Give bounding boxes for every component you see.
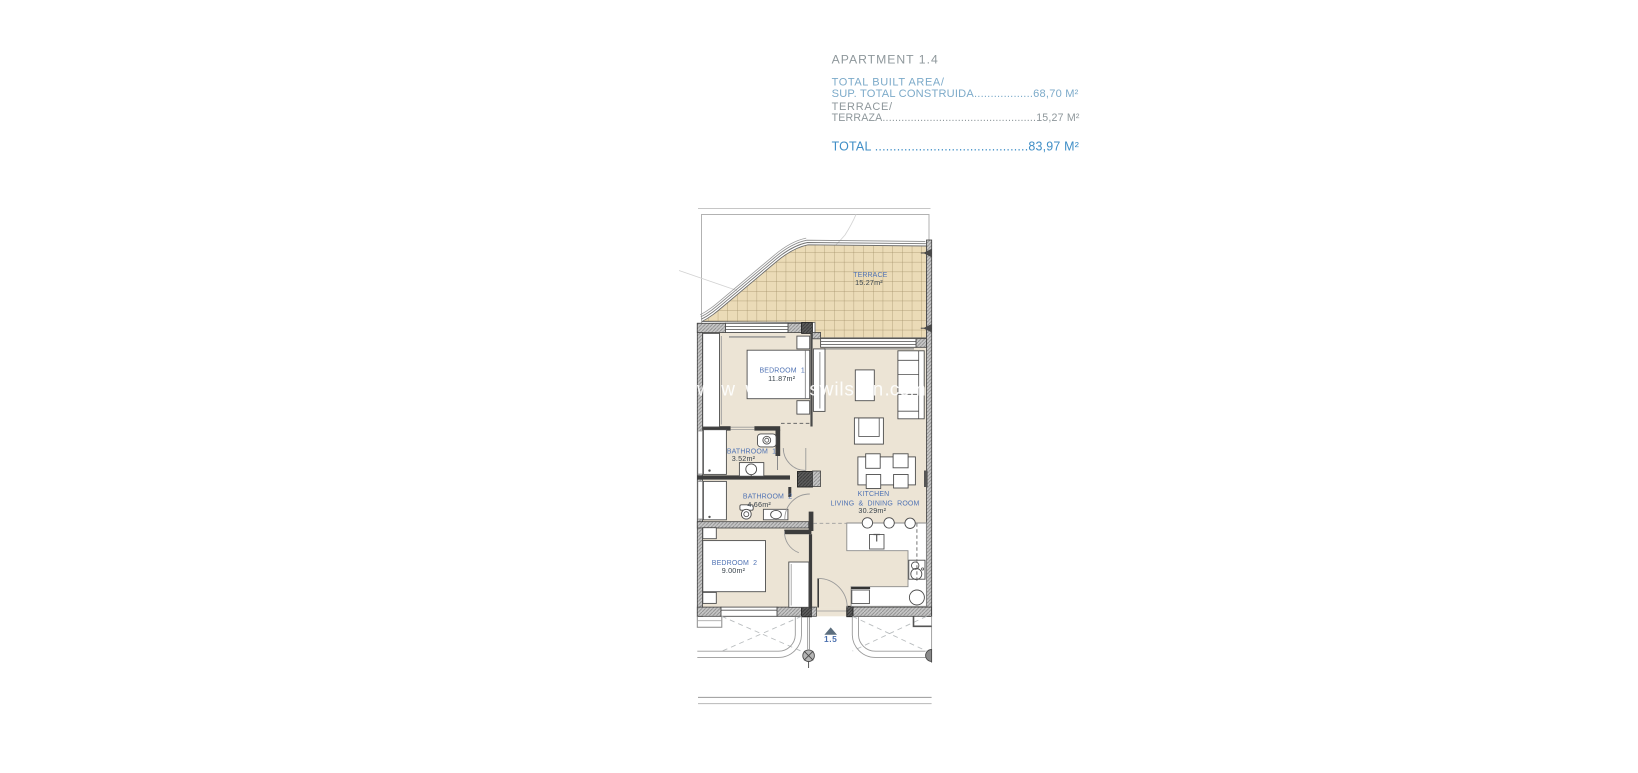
- svg-text:30.29m²: 30.29m²: [858, 506, 886, 515]
- svg-text:3.52m²: 3.52m²: [732, 454, 756, 463]
- svg-text:11.87m²: 11.87m²: [768, 374, 796, 383]
- svg-text:on: on: [862, 379, 883, 400]
- svg-text:SUP. TOTAL CONSTRUIDA.........: SUP. TOTAL CONSTRUIDA..................6…: [832, 88, 1079, 100]
- svg-text:TERRAZA.......................: TERRAZA.................................…: [832, 112, 1080, 124]
- svg-text:TOTAL BUILT AREA/: TOTAL BUILT AREA/: [832, 76, 945, 88]
- svg-text:TOTAL ........................: TOTAL ..................................…: [832, 139, 1080, 153]
- svg-text:APARTMENT 1.4: APARTMENT 1.4: [832, 53, 939, 67]
- svg-text:9.00m²: 9.00m²: [722, 566, 746, 575]
- svg-text:www: www: [696, 379, 770, 400]
- svg-text:4.66m²: 4.66m²: [747, 500, 771, 509]
- svg-text:1.5: 1.5: [824, 634, 837, 644]
- svg-text:.com: .com: [885, 379, 926, 400]
- svg-text:swils: swils: [810, 379, 855, 400]
- svg-text:KITCHEN: KITCHEN: [858, 491, 890, 498]
- svg-text:15.27m²: 15.27m²: [855, 278, 883, 287]
